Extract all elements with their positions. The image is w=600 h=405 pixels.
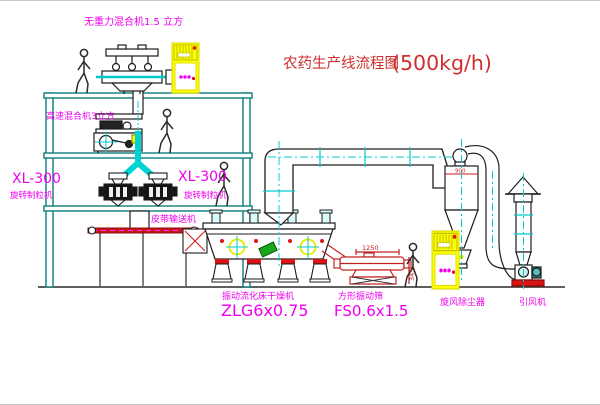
screen-model-label: FS0.6x1.5 xyxy=(334,302,408,320)
screen-name-label: 方形振动筛 xyxy=(338,290,383,302)
drawing-title: 农药生产线流程图 xyxy=(283,55,399,72)
mixer-mid-label: 高速混合机3立方 xyxy=(46,110,115,122)
screen-length-dimension: 1250 xyxy=(362,244,379,252)
granulator-right-model-label: XL-300 xyxy=(178,169,227,185)
screen-machine xyxy=(334,249,411,284)
granulator-right-machine xyxy=(139,173,177,206)
mixer-top-label: 无重力混合机1.5 立方 xyxy=(84,15,183,28)
granulator-left-machine xyxy=(99,173,137,206)
dryer-feet xyxy=(212,259,330,282)
drawing-title-capacity: (500kg/h) xyxy=(392,51,492,75)
granulator-left-name-label: 旋转制粒机 xyxy=(10,190,53,201)
fan-name-label: 引风机 xyxy=(519,296,546,308)
cyclone-name-label: 旋风除尘器 xyxy=(440,296,485,308)
granulator-left-model-label: XL-300 xyxy=(12,171,61,187)
belt-conveyor-label: 皮带输送机 xyxy=(151,213,196,225)
floor-chute xyxy=(130,211,149,229)
screen-height-dimension: 345 xyxy=(408,269,416,281)
control-cabinet-top xyxy=(172,43,199,93)
mixer-top-machine xyxy=(96,45,176,94)
process-flow-drawing: 无重力混合机1.5 立方 农药生产线流程图 (500kg/h) 高速混合机3立方… xyxy=(0,1,600,404)
belt-conveyor-machine xyxy=(88,227,198,286)
cyclone-dimension: 900 xyxy=(455,169,466,175)
flow-diagram-canvas: 无重力混合机1.5 立方 农药生产线流程图 (500kg/h) 高速混合机3立方… xyxy=(0,0,600,405)
control-cabinet-right xyxy=(432,231,459,289)
dryer-machine xyxy=(203,210,335,282)
worker-figure-1 xyxy=(76,49,90,93)
dryer-feed-box xyxy=(183,229,207,253)
worker-figure-2 xyxy=(159,109,173,153)
fan-stack-machine xyxy=(505,173,544,289)
dryer-model-label: ZLG6x0.75 xyxy=(221,301,309,320)
granulator-right-name-label: 旋转制粒机 xyxy=(184,190,227,201)
